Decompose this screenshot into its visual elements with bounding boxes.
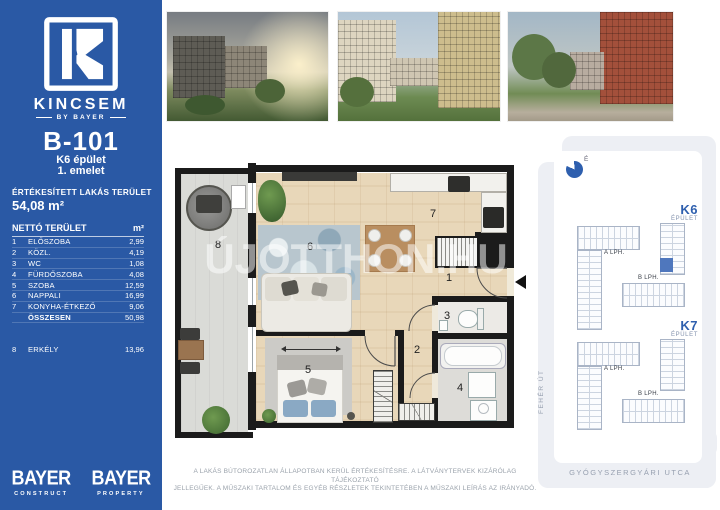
table-row: 6 NAPPALI 16,99 xyxy=(12,291,144,302)
building-wing xyxy=(577,250,602,330)
bathtub-inner xyxy=(444,346,502,366)
building-shape xyxy=(173,36,225,98)
table-row: 3 WC 1,08 xyxy=(12,259,144,270)
highlighted-unit xyxy=(660,258,673,272)
table-row-balcony: 8 ERKÉLY 13,96 xyxy=(12,344,144,355)
row-name: WC xyxy=(28,259,114,268)
kitchen-sink xyxy=(448,176,470,192)
photo-rendering-courtyard xyxy=(338,12,500,121)
bayer-property-logo: BAYER PROPERTY xyxy=(90,468,152,497)
unit-id: B-101 xyxy=(0,126,162,157)
row-name: SZOBA xyxy=(28,281,114,290)
tree-shape xyxy=(185,95,225,115)
brand-subtitle: BY BAYER xyxy=(57,114,106,121)
tree-shape xyxy=(340,77,374,107)
table-header-label: NETTÓ TERÜLET xyxy=(12,223,87,233)
wall xyxy=(175,168,253,174)
floor-plan: 1 2 3 4 5 6 7 8 ÚJOTTHON.HU xyxy=(172,163,524,447)
disclaimer-line-2: JELLEGŰEK. A MŰSZAKI TARTALOM ÉS EGYÉB R… xyxy=(172,485,538,494)
building-shape xyxy=(438,12,500,108)
row-value: 12,59 xyxy=(114,281,144,290)
building-k6-label: ÉPÜLET xyxy=(650,216,698,222)
disclaimer-text: A LAKÁS BÚTOROZATLAN ÁLLAPOTBAN KERÜL ÉR… xyxy=(172,468,538,494)
row-name: KÖZL. xyxy=(28,248,114,257)
row-num: 1 xyxy=(12,237,28,246)
sold-area-value: 54,08 m² xyxy=(12,198,152,213)
tree-shape xyxy=(255,79,285,103)
wardrobe xyxy=(373,370,393,423)
floor-lamp xyxy=(347,412,355,420)
net-area-table: NETTÓ TERÜLET m² 1 ELŐSZOBA 2,99 2 KÖZL.… xyxy=(12,223,144,355)
k6-stairwell-a-label: A LPH. xyxy=(604,250,624,256)
compass-icon xyxy=(566,161,583,178)
wall xyxy=(175,168,181,438)
row-name: ERKÉLY xyxy=(28,345,114,354)
table-row: 5 SZOBA 12,59 xyxy=(12,280,144,291)
door-opening xyxy=(432,373,438,398)
room-label-bedroom: 5 xyxy=(300,364,316,376)
brand-name: KINCSEM xyxy=(0,96,162,114)
row-num: 6 xyxy=(12,291,28,300)
row-value: 50,98 xyxy=(114,313,144,322)
row-num: 4 xyxy=(12,270,28,279)
toilet-tank xyxy=(477,308,484,330)
street-label-gyogyszergyari: GYÓGYSZERGYÁRI UTCA xyxy=(560,468,700,477)
cooktop xyxy=(483,207,504,228)
building-wing xyxy=(622,283,685,307)
photo-rendering-street xyxy=(508,12,673,121)
k7-stairwell-a-label: A LPH. xyxy=(604,366,624,372)
plant xyxy=(202,406,230,434)
building-shape xyxy=(600,12,673,104)
building-wing xyxy=(577,226,640,250)
dimension-arrow-right xyxy=(336,346,341,352)
row-num: 8 xyxy=(12,345,28,354)
brand-subtitle-row: BY BAYER xyxy=(0,114,162,121)
building-wing xyxy=(622,399,685,423)
table-row: 2 KÖZL. 4,19 xyxy=(12,248,144,259)
washbasin xyxy=(468,372,496,398)
table-row: 4 FÜRDŐSZOBA 4,08 xyxy=(12,269,144,280)
row-value: 9,06 xyxy=(114,302,144,311)
logo-name: BAYER xyxy=(12,467,71,491)
window xyxy=(248,183,256,213)
sold-area-label: ÉRTÉKESÍTETT LAKÁS TERÜLET xyxy=(12,188,152,197)
logo-sub: PROPERTY xyxy=(90,491,152,497)
bayer-construct-logo: BAYER CONSTRUCT xyxy=(10,468,72,497)
row-value: 1,08 xyxy=(114,259,144,268)
logo-sub: CONSTRUCT xyxy=(10,491,72,497)
company-logos: BAYER CONSTRUCT BAYER PROPERTY xyxy=(10,468,152,497)
row-value: 4,08 xyxy=(114,270,144,279)
table-row: 1 ELŐSZOBA 2,99 xyxy=(12,237,144,248)
wall xyxy=(248,165,514,172)
row-num: 3 xyxy=(12,259,28,268)
room-label-bath: 4 xyxy=(452,382,468,394)
table-header: NETTÓ TERÜLET m² xyxy=(12,223,144,237)
wardrobe xyxy=(398,403,435,421)
building-k7-label: ÉPÜLET xyxy=(650,332,698,338)
k7-stairwell-b-label: B LPH. xyxy=(638,391,659,397)
compass-north-label: É xyxy=(584,156,588,163)
room-label-corridor: 2 xyxy=(409,344,425,356)
floor-name: 1. emelet xyxy=(0,165,162,177)
throw-pillow xyxy=(311,282,328,297)
tv-console xyxy=(282,172,357,181)
toilet xyxy=(458,310,478,328)
row-name: NAPPALI xyxy=(28,291,114,300)
row-value: 2,99 xyxy=(114,237,144,246)
logo-name: BAYER xyxy=(91,467,150,491)
wall xyxy=(438,333,514,339)
row-value: 13,96 xyxy=(114,345,144,354)
chair-cushion xyxy=(196,195,222,213)
row-name: ÖSSZESEN xyxy=(28,313,114,322)
entrance-arrow-icon xyxy=(515,275,526,289)
row-name: KONYHA-ÉTKEZŐ xyxy=(28,302,114,311)
table-row: 7 KONYHA-ÉTKEZŐ 9,06 xyxy=(12,302,144,313)
building-wing xyxy=(577,342,640,366)
building-wing xyxy=(660,339,685,391)
tree-shape xyxy=(542,52,576,88)
kincsem-logo-icon xyxy=(43,15,119,93)
photo-rendering-park xyxy=(167,12,328,121)
balcony-chair xyxy=(180,362,200,374)
row-num: 7 xyxy=(12,302,28,311)
radiator xyxy=(231,185,246,209)
building-k6-id: K6 xyxy=(650,202,698,217)
row-name: ELŐSZOBA xyxy=(28,237,114,246)
bed-pillow-blue xyxy=(283,400,308,417)
row-value: 4,19 xyxy=(114,248,144,257)
room-label-wc: 3 xyxy=(439,310,455,322)
door-opening xyxy=(432,305,438,331)
bed-pillow-blue xyxy=(311,400,336,417)
building-wing xyxy=(577,366,602,430)
watermark: ÚJOTTHON.HU xyxy=(200,235,512,283)
row-num: 5 xyxy=(12,281,28,290)
brochure-page: KINCSEM BY BAYER B-101 K6 épület 1. emel… xyxy=(0,0,720,510)
sidebar: KINCSEM BY BAYER B-101 K6 épület 1. emel… xyxy=(0,0,162,510)
divider-line xyxy=(36,117,52,118)
table-header-unit: m² xyxy=(133,223,144,233)
disclaimer-line-1: A LAKÁS BÚTOROZATLAN ÁLLAPOTBAN KERÜL ÉR… xyxy=(172,468,538,485)
plant xyxy=(258,180,286,222)
row-value: 16,99 xyxy=(114,291,144,300)
washing-machine-drum xyxy=(478,403,489,414)
room-label-kitchen: 7 xyxy=(425,208,441,220)
row-num: 2 xyxy=(12,248,28,257)
dimension-arrow-left xyxy=(281,346,286,352)
building-k7-id: K7 xyxy=(650,318,698,333)
wall xyxy=(432,296,514,302)
divider-line xyxy=(110,117,126,118)
street-label-feher-ut: FEHÉR ÚT xyxy=(538,352,545,414)
balcony-table xyxy=(178,340,204,360)
balcony-chair xyxy=(180,328,200,340)
plant xyxy=(262,409,276,423)
dimension-line xyxy=(283,349,337,350)
table-row-total: ÖSSZESEN 50,98 xyxy=(12,313,144,324)
k6-stairwell-b-label: B LPH. xyxy=(638,275,659,281)
window xyxy=(248,327,256,372)
row-name: FÜRDŐSZOBA xyxy=(28,270,114,279)
